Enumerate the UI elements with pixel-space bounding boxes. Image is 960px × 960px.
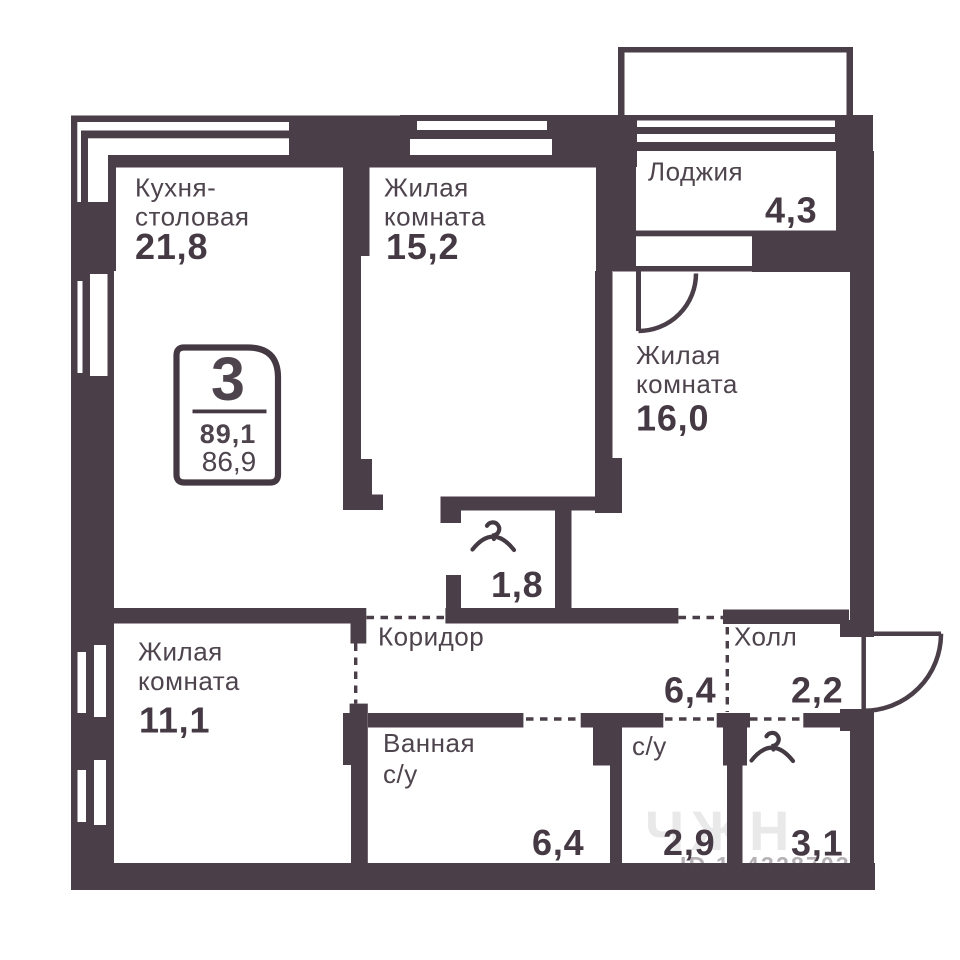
svg-text:11,1: 11,1 [139, 700, 210, 741]
svg-text:1,8: 1,8 [491, 564, 543, 605]
svg-text:Коридор: Коридор [378, 622, 484, 652]
svg-text:4,3: 4,3 [765, 190, 817, 231]
svg-text:Жилая: Жилая [384, 173, 469, 203]
svg-text:15,2: 15,2 [386, 226, 459, 267]
svg-text:6,4: 6,4 [664, 670, 716, 711]
svg-text:89,1: 89,1 [200, 419, 257, 449]
svg-text:с/у: с/у [632, 731, 667, 761]
svg-text:с/у: с/у [383, 759, 418, 789]
svg-text:3: 3 [211, 345, 245, 413]
svg-text:16,0: 16,0 [636, 398, 709, 439]
svg-text:ID 134328703: ID 134328703 [680, 852, 851, 878]
svg-text:комната: комната [138, 666, 240, 696]
svg-text:Ванная: Ванная [383, 728, 475, 758]
svg-text:21,8: 21,8 [135, 226, 208, 267]
svg-text:Кухня-: Кухня- [135, 173, 216, 203]
svg-text:Жилая: Жилая [636, 340, 721, 370]
svg-text:Лоджия: Лоджия [648, 157, 743, 187]
svg-text:6,4: 6,4 [532, 822, 584, 863]
svg-text:Жилая: Жилая [138, 637, 223, 667]
svg-text:2,2: 2,2 [791, 670, 843, 711]
svg-text:Холл: Холл [734, 622, 797, 652]
svg-text:комната: комната [636, 369, 738, 399]
svg-text:86,9: 86,9 [202, 446, 257, 477]
